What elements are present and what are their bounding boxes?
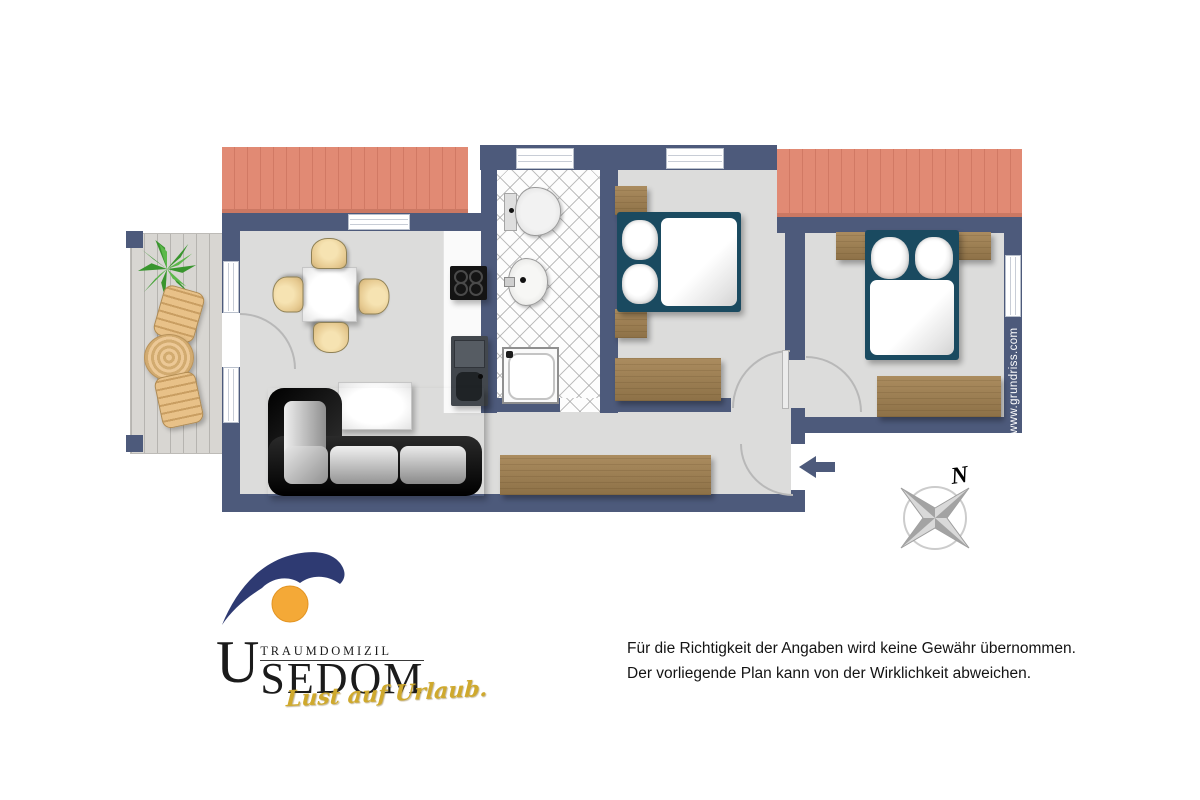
bathroom-door-opening xyxy=(560,398,600,412)
bed-2 xyxy=(865,230,959,360)
nightstand-2 xyxy=(615,309,647,338)
north-label: N xyxy=(948,462,971,491)
window-terrace-1 xyxy=(223,261,239,313)
wardrobe-bedroom2 xyxy=(877,376,1001,417)
roof-left xyxy=(222,147,468,213)
wall-bedroom2-bottom xyxy=(797,417,1022,433)
wardrobe-bedroom1 xyxy=(615,358,721,401)
compass-rose-icon: N xyxy=(890,458,982,552)
entrance-arrow-icon xyxy=(799,456,837,478)
disclaimer: Für die Richtigkeit der Angaben wird kei… xyxy=(627,636,1076,686)
sideboard-corridor xyxy=(500,455,711,495)
window-living-top xyxy=(348,214,410,230)
bed-1 xyxy=(617,212,741,312)
wall-bottom xyxy=(222,494,805,512)
dining-table xyxy=(302,267,357,322)
headboard-shelf-left xyxy=(836,232,868,260)
bedroom1-door-leaf xyxy=(782,350,789,409)
logo-brand-initial: U xyxy=(216,637,259,688)
roof-right xyxy=(777,149,1022,217)
washbasin xyxy=(504,256,548,306)
corner-sofa xyxy=(268,388,484,496)
floor-plan-page: www.grundriss.com N U TRAUMDOMIZIL SEDOM… xyxy=(0,0,1200,800)
shower xyxy=(502,347,559,404)
wall-entry-side xyxy=(791,408,805,444)
window-bathroom-top xyxy=(516,148,574,169)
logo-wave-icon xyxy=(218,547,352,642)
dining-chair-bottom xyxy=(313,322,349,353)
logo: U TRAUMDOMIZIL SEDOM Lust auf Urlaub. xyxy=(214,545,454,720)
wall-entry-corner xyxy=(791,490,805,512)
disclaimer-line-2: Der vorliegende Plan kann von der Wirkli… xyxy=(627,661,1076,686)
terrace-door-opening xyxy=(222,313,240,367)
dining-chair-left xyxy=(273,277,304,313)
window-terrace-2 xyxy=(223,367,239,423)
nightstand-1 xyxy=(615,186,647,215)
cooktop xyxy=(450,266,487,300)
window-bedroom2-right xyxy=(1005,255,1021,317)
watermark: www.grundriss.com xyxy=(1005,314,1022,434)
dining-chair-right xyxy=(359,279,390,315)
dining-chair-top xyxy=(311,238,347,269)
headboard-shelf-right xyxy=(956,232,991,260)
disclaimer-line-1: Für die Richtigkeit der Angaben wird kei… xyxy=(627,636,1076,661)
window-bedroom1-top xyxy=(666,148,724,169)
terrace-post-bottom xyxy=(126,435,143,452)
toilet xyxy=(504,186,562,236)
